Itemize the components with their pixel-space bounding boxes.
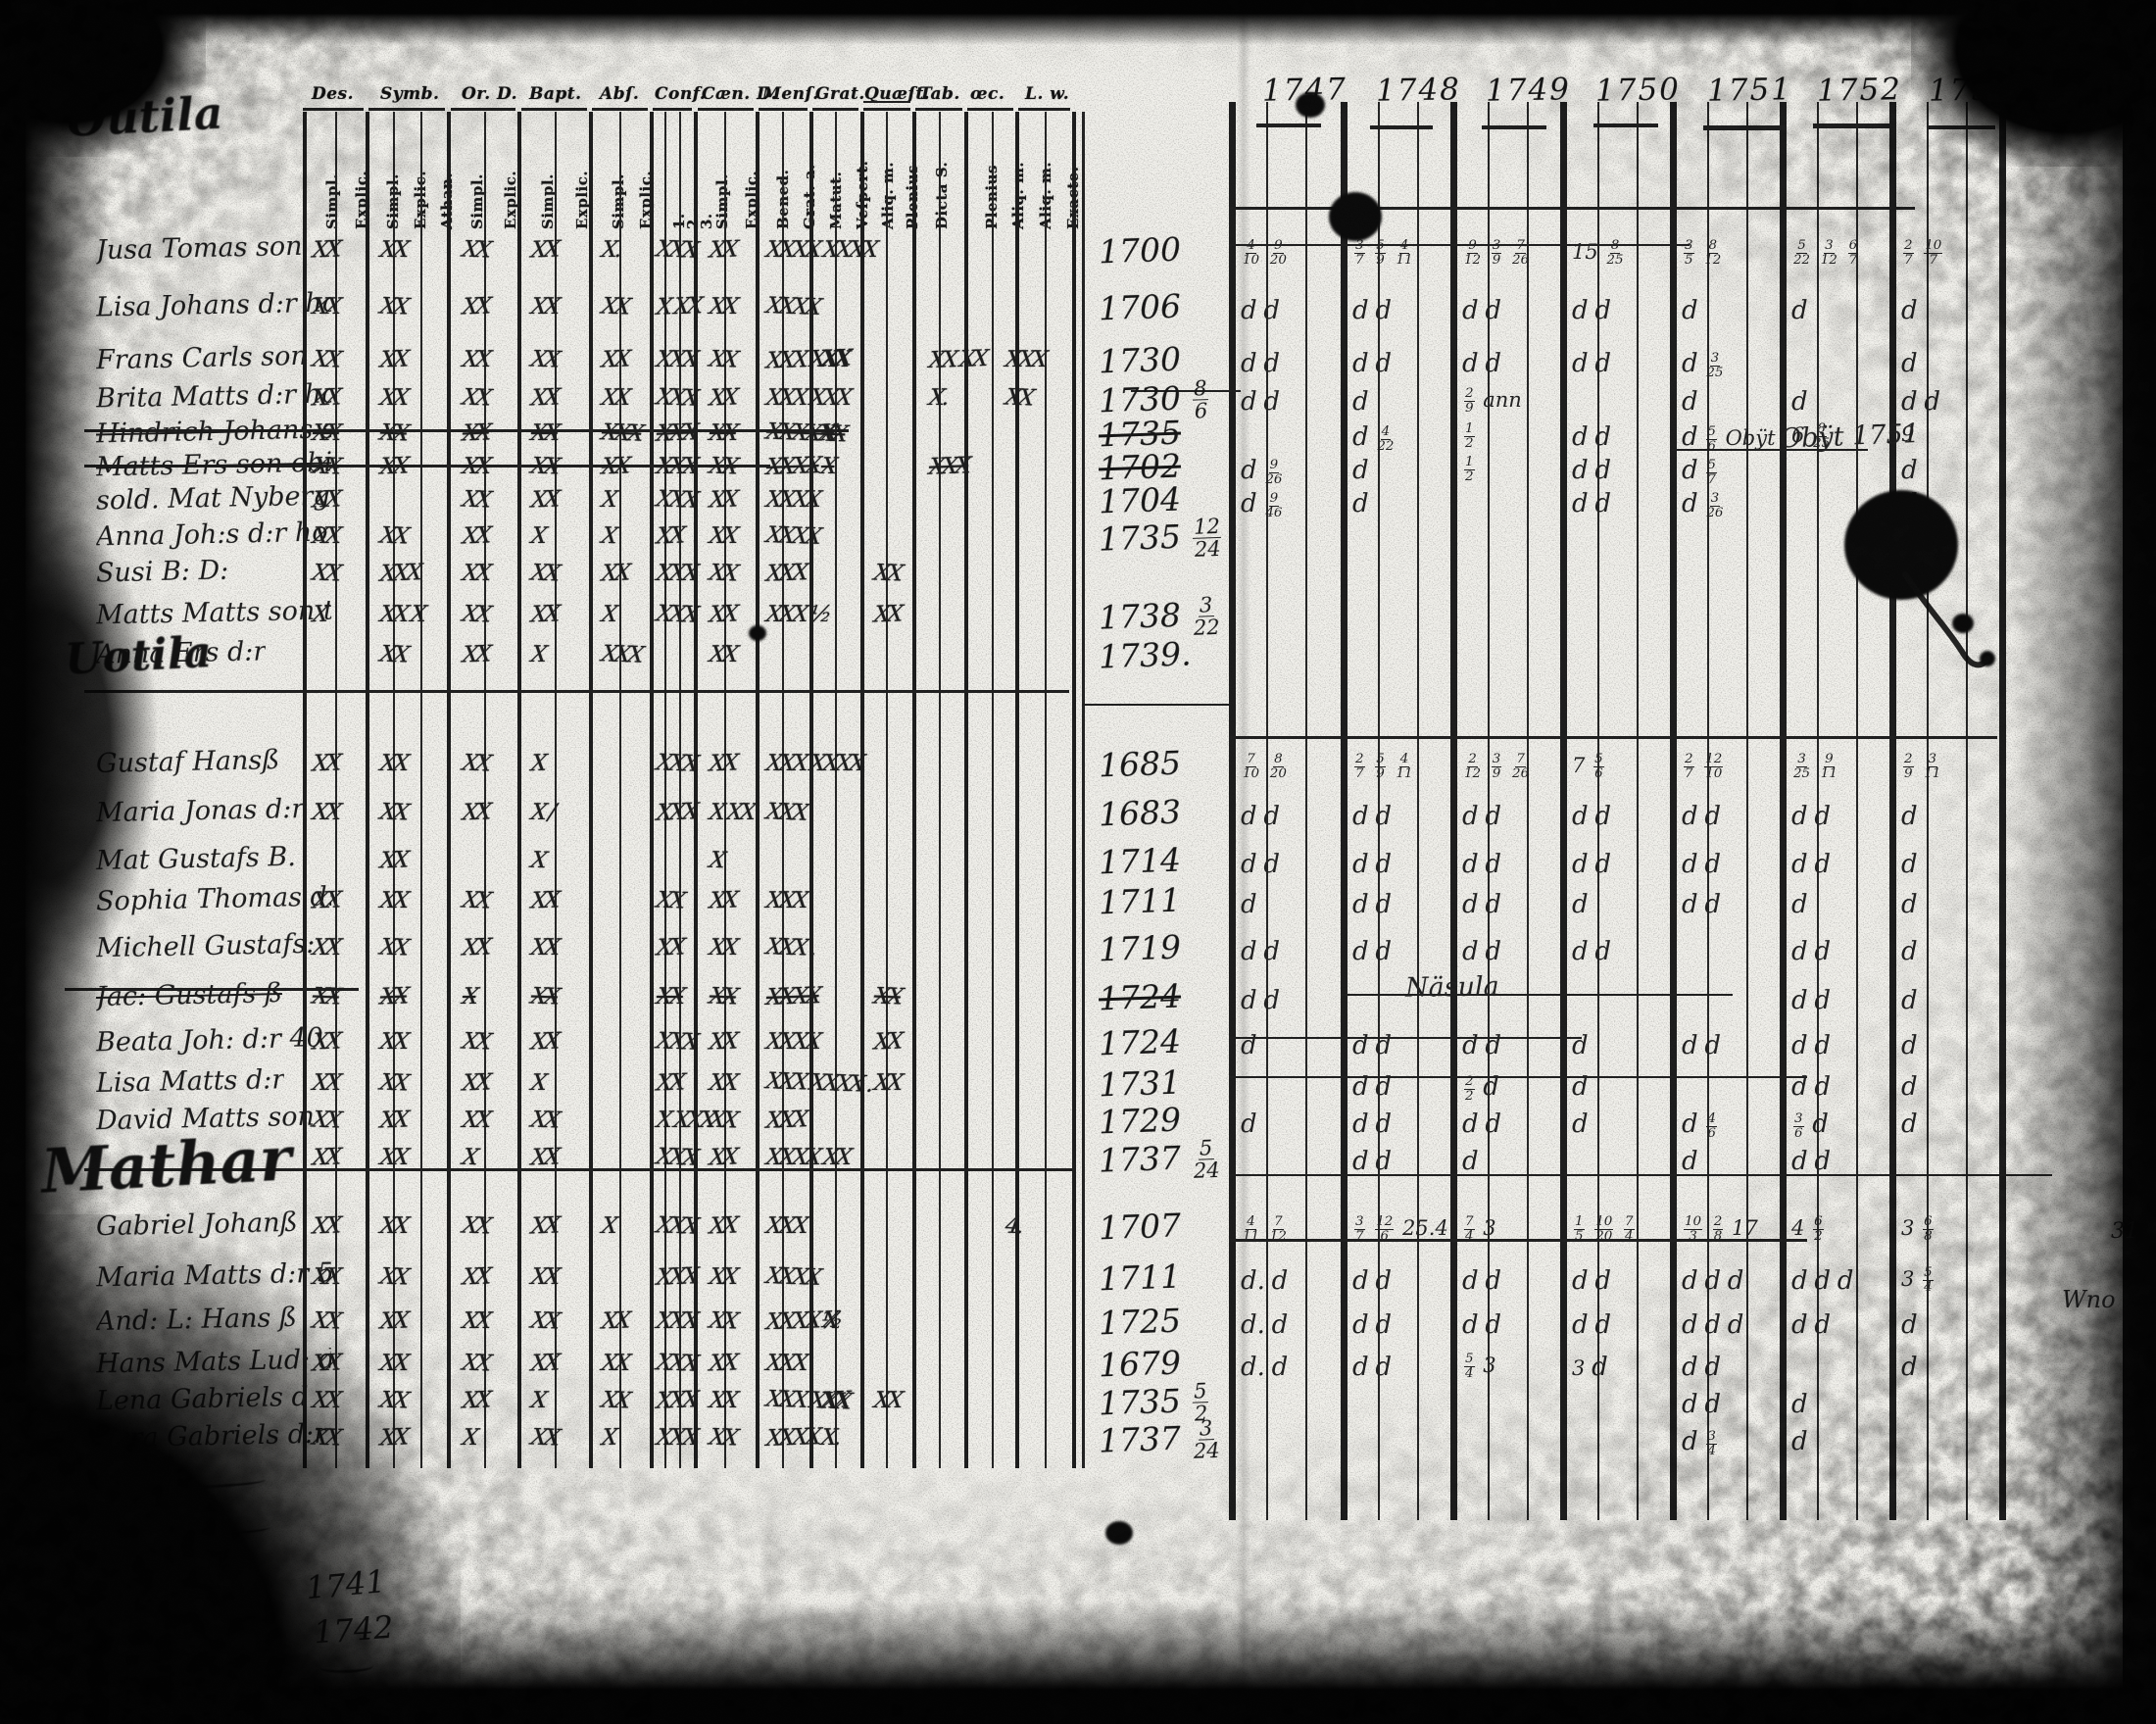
right-grid-rule-thin [1966, 102, 1968, 1520]
communion-record-cell: d [1791, 1427, 1808, 1456]
communion-record-cell: d [1901, 296, 1918, 325]
birth-year: 1730 [1098, 340, 1181, 381]
communion-record-cell: 29 311 [1901, 753, 1942, 781]
ditto-mark: d [1682, 349, 1698, 378]
fraction-date: 39 [1492, 753, 1502, 781]
communion-record-cell: 12 [1462, 422, 1477, 451]
rule-horizontal [592, 108, 648, 111]
communion-record-cell: 12 [1462, 456, 1477, 484]
communion-record-cell: d [1241, 1031, 1257, 1060]
birth-year: 1725 [1098, 1302, 1181, 1343]
attendance-marks-cell: XX [872, 561, 903, 587]
attendance-marks-cell: XXX [928, 453, 970, 480]
ditto-mark: d [1728, 1310, 1744, 1340]
attendance-marks-cell: XX [312, 750, 340, 776]
ditto-mark: d [1375, 1310, 1392, 1340]
communion-record-cell: d [1901, 937, 1918, 966]
attendance-marks-cell: XXX [1004, 347, 1047, 372]
communion-record-cell: d d [1462, 349, 1501, 378]
ink-blot [1952, 614, 1974, 633]
attendance-marks-cell: XX [530, 1144, 559, 1170]
ditto-mark: d [1682, 296, 1698, 325]
attendance-marks-cell: XXX [765, 560, 808, 587]
section-title: Uotila [64, 627, 213, 685]
attendance-marks-cell: XX [708, 1108, 738, 1134]
fraction-date: 62 [1813, 1215, 1824, 1244]
attendance-marks-cell: XX [872, 1388, 902, 1413]
attendance-marks-cell: X [461, 984, 477, 1010]
attendance-marks-cell: XX [656, 934, 684, 961]
communion-record-cell: d 56 Obÿt [1682, 422, 1776, 454]
birth-year: 1729 [1098, 1101, 1181, 1142]
birth-year: 1739. [1098, 634, 1192, 675]
birth-year: 1679 [1098, 1344, 1181, 1385]
ditto-mark: d [1814, 1072, 1831, 1102]
birth-year: 1724 [1098, 977, 1181, 1018]
attendance-marks-cell: XX [378, 642, 409, 668]
ditto-mark: d [1241, 850, 1257, 879]
attendance-marks-cell: XX [378, 1388, 409, 1414]
ditto-mark: d [1352, 1310, 1369, 1340]
grid-rule-vertical-thin [992, 112, 994, 1468]
attendance-marks-cell: X [529, 642, 546, 667]
ditto-mark: d [1241, 890, 1257, 919]
attendance-marks-cell: X [819, 454, 836, 479]
attendance-marks-cell: XXX [764, 799, 808, 825]
attendance-marks-cell: XX [709, 486, 737, 513]
handwritten-annotation: Obÿt 1751 [1780, 419, 1921, 455]
attendance-marks-cell: XX [601, 453, 629, 479]
ditto-mark: d [1241, 387, 1257, 417]
ditto-mark: d [1704, 1031, 1721, 1060]
ditto-mark: d [1375, 1353, 1392, 1382]
rule-horizontal [1341, 994, 1733, 996]
communion-record-cell: d [1791, 296, 1808, 325]
attendance-marks-cell: XXX [655, 601, 699, 627]
column-subheader: Aliq. m. [879, 162, 897, 229]
communion-record-cell: 37 126 25.4 [1352, 1215, 1448, 1244]
ditto-mark: d [1462, 850, 1479, 879]
attendance-marks-cell: XX [530, 486, 559, 513]
attendance-marks-cell: XXX [655, 236, 699, 263]
row-name: Matts Matts son tien: [96, 595, 332, 630]
rule-horizontal [84, 690, 1069, 693]
faint-scribble [319, 1659, 373, 1674]
ditto-mark: d [1263, 986, 1280, 1015]
communion-record-cell: d [1682, 387, 1698, 417]
year-header: 1750 [1595, 72, 1682, 109]
ditto-mark: d [1375, 296, 1392, 325]
attendance-marks-cell: XX [708, 294, 737, 320]
communion-record-cell: d [1901, 1353, 1918, 1382]
ditto-mark: d [1594, 1266, 1611, 1296]
attendance-marks-cell: XX [462, 293, 490, 320]
communion-record-cell: d d [1352, 1353, 1392, 1382]
ditto-mark: d [1241, 1031, 1257, 1060]
ditto-mark: d [1901, 802, 1918, 831]
rule-horizontal [812, 108, 858, 111]
attendance-marks-cell: XX [873, 1028, 902, 1055]
ditto-mark: d [1791, 986, 1808, 1015]
birth-year: 1737 524 [1098, 1137, 1222, 1186]
attendance-marks-cell: XX [378, 1213, 408, 1239]
attendance-marks-cell: X [529, 1388, 546, 1413]
communion-record-cell: d d d [1682, 1310, 1743, 1340]
year-header: 1748 [1376, 72, 1462, 109]
rule-horizontal [1927, 125, 1995, 129]
ditto-mark: d [1791, 387, 1808, 417]
row-name: Maria Jonas d:r [96, 794, 305, 828]
attendance-marks-cell: XX [530, 236, 559, 263]
attendance-marks-cell: X. [819, 1425, 840, 1451]
grid-rule-vertical [650, 112, 654, 1468]
fraction-date: 311 [1924, 753, 1940, 781]
ditto-mark: d [1375, 1031, 1392, 1060]
communion-record-cell: 27 1210 [1682, 753, 1725, 781]
birth-year: 1735 1224 [1098, 516, 1224, 565]
communion-record-cell: d d [1352, 802, 1392, 831]
ditto-mark: d [1572, 349, 1589, 378]
attendance-marks-cell: XX [462, 1263, 490, 1290]
column-subheader: Simpl. [713, 173, 731, 229]
column-header: Menſ. [762, 84, 819, 104]
ditto-mark: d [1901, 1353, 1918, 1382]
communion-record-cell: 4 62 [1791, 1215, 1826, 1244]
ditto-mark: d [1352, 422, 1369, 452]
attendance-marks-cell: XX [529, 420, 559, 446]
rule-horizontal [451, 108, 515, 111]
attendance-marks-cell: XX [462, 522, 490, 549]
ditto-mark: d [1572, 296, 1589, 325]
attendance-marks-cell: XXX XXXX . [764, 1068, 873, 1098]
fraction-date: 56 [1706, 425, 1717, 454]
ditto-mark: d [1375, 937, 1392, 966]
communion-record-cell: 15 825 [1572, 239, 1626, 268]
rule-horizontal [1370, 125, 1433, 129]
fraction-date: 29 [1903, 753, 1914, 781]
attendance-marks-cell: XX [378, 800, 409, 826]
fraction-date: 34 [1706, 1430, 1717, 1458]
attendance-marks-cell: XX [311, 935, 340, 961]
ditto-mark: d [1901, 387, 1918, 417]
ditto-mark: d [1485, 1310, 1501, 1340]
communion-record-cell: d [1572, 1031, 1589, 1060]
fraction-date: 36 [1793, 1112, 1804, 1141]
rule-horizontal [521, 108, 587, 111]
attendance-marks-cell: XX [311, 1108, 341, 1134]
attendance-marks-cell: X [600, 602, 616, 627]
attendance-marks-cell: XX [311, 1308, 341, 1335]
handwritten-annotation: Näsula [1405, 971, 1499, 1004]
ditto-mark: d [1814, 1147, 1831, 1176]
ditto-mark: d [1485, 937, 1501, 966]
ditto-mark: d [1241, 489, 1257, 518]
communion-record-cell: d d [1572, 1310, 1611, 1340]
communion-record-cell: 27 107 [1901, 239, 1944, 268]
communion-record-cell: d 57 [1682, 456, 1719, 487]
birth-year: 1685 [1098, 744, 1181, 785]
attendance-marks-cell: XXX [655, 1028, 699, 1055]
ditto-mark: d [1241, 986, 1257, 1015]
attendance-marks-cell: XX [311, 454, 341, 480]
communion-record-cell: d [1901, 802, 1918, 831]
communion-record-cell: d [1352, 456, 1369, 485]
ditto-mark: d [1682, 1427, 1698, 1456]
fraction-date: 312 [1821, 239, 1837, 268]
attendance-marks-cell: XX [709, 384, 737, 411]
row-name: Lisa Johans d:r ho [96, 287, 332, 322]
communion-record-cell: d d [1352, 1310, 1392, 1340]
attendance-marks-cell: XX [378, 237, 408, 263]
communion-record-cell: 74 3 [1462, 1215, 1496, 1244]
ditto-mark: d [1462, 890, 1479, 919]
ditto-mark: d [1352, 349, 1369, 378]
ditto-mark: d [1682, 456, 1698, 485]
attendance-marks-cell: X. [927, 385, 948, 411]
communion-record-cell: d d [1462, 850, 1501, 879]
communion-record-cell: d d [1352, 1109, 1392, 1139]
fraction-date: 524 [1193, 1137, 1220, 1182]
attendance-marks-cell: XX [530, 1028, 559, 1055]
birth-year: 1724 [1098, 1022, 1181, 1063]
ditto-mark: d [1682, 1031, 1698, 1060]
attendance-marks-cell: XX [530, 1350, 559, 1376]
row-name: Anna Joh:s d:r ho [96, 517, 328, 553]
communion-record-cell: d [1901, 1109, 1918, 1139]
attendance-marks-cell: XX [530, 601, 559, 627]
attendance-marks-cell: X XX [656, 293, 702, 320]
right-grid-rule-thick [1780, 102, 1787, 1520]
fraction-date: 410 [1243, 239, 1259, 268]
ditto-mark: d [1791, 1266, 1808, 1296]
attendance-marks-cell: XXXX [765, 983, 820, 1010]
attendance-marks-cell: XXX [655, 1350, 699, 1376]
attendance-marks-cell: XX [378, 385, 408, 411]
fraction-date: 28 [1713, 1215, 1724, 1244]
ditto-mark: d [1901, 937, 1918, 966]
communion-record-cell: d d [1901, 387, 1940, 417]
attendance-marks-cell: X [820, 420, 836, 447]
ditto-mark: d [1272, 1266, 1289, 1296]
fraction-date: 326 [1706, 492, 1723, 520]
attendance-marks-cell: XX [708, 1070, 737, 1096]
grid-rule-vertical [964, 112, 968, 1468]
grid-rule-vertical-thin [420, 112, 422, 1468]
ditto-mark: d [1241, 296, 1257, 325]
attendance-marks-cell: XX X [378, 602, 425, 627]
fraction-date: 126 [1375, 1215, 1394, 1244]
ink-blot [1329, 192, 1382, 241]
attendance-marks-cell: XX [530, 1212, 559, 1239]
grid-rule-vertical-thin [1045, 112, 1047, 1468]
ditto-mark: d [1485, 802, 1501, 831]
fraction-date: 325 [1706, 352, 1723, 380]
column-header: Or. D. [462, 84, 517, 104]
communion-record-cell: d d [1352, 349, 1392, 378]
fraction-date: 12 [1464, 422, 1475, 451]
ditto-mark: d [1704, 850, 1721, 879]
attendance-marks-cell: XX [379, 1107, 408, 1133]
attendance-marks-cell: XX [529, 1264, 559, 1290]
section-title: Mathar [39, 1122, 293, 1207]
attendance-marks-cell: X [530, 751, 546, 777]
fraction-date: 37 [1354, 1215, 1365, 1244]
fraction-date: 27 [1684, 753, 1694, 781]
communion-record-cell: d [1901, 1072, 1918, 1102]
row-name: And: L: Hans ß [96, 1303, 298, 1337]
communion-record-cell: d 34 [1682, 1427, 1719, 1458]
birth-year: 1711 [1098, 881, 1181, 922]
communion-record-cell: d d [1352, 1147, 1392, 1176]
ditto-mark: d [1572, 937, 1589, 966]
ditto-mark: d [1812, 1109, 1829, 1139]
attendance-marks-cell: XX [378, 935, 409, 961]
ditto-mark: d [1352, 850, 1369, 879]
ditto-mark: d [1462, 1031, 1479, 1060]
birth-year: 1704 [1098, 480, 1181, 521]
ditto-mark: d [1791, 802, 1808, 831]
attendance-marks-cell: XX [529, 1308, 560, 1335]
fraction-date: 39 [1492, 239, 1502, 268]
communion-record-cell: d d [1572, 489, 1611, 518]
attendance-marks-cell: X [529, 1070, 546, 1096]
ditto-mark: d [1375, 802, 1392, 831]
communion-record-cell: d. d [1241, 1266, 1288, 1296]
attendance-marks-cell: XX [311, 561, 341, 587]
attendance-marks-cell: XXX XXXX [764, 751, 864, 776]
ditto-mark: d [1682, 802, 1698, 831]
fraction-date: 812 [1704, 239, 1721, 268]
ditto-mark: d [1352, 1072, 1369, 1102]
grid-rule-vertical-thin [939, 112, 941, 1468]
scanned-register-page: Des.Symb.Or. D.Bapt.Abſ.Conf.Cæn. D.Menſ… [0, 0, 2156, 1724]
attendance-marks-cell: XX [708, 347, 738, 373]
grid-rule-vertical [589, 112, 593, 1468]
attendance-marks-cell: XX [311, 800, 340, 825]
rule-horizontal [1229, 736, 1997, 739]
communion-record-cell: d d [1572, 937, 1611, 966]
ink-blot [1105, 1521, 1133, 1545]
handwritten-annotation: 31 [2111, 1219, 2138, 1244]
attendance-marks-cell: XX [378, 1351, 408, 1376]
communion-record-cell: d d [1352, 890, 1392, 919]
ditto-mark: d [1462, 1109, 1479, 1139]
attendance-marks-cell: X [600, 523, 617, 549]
ditto-mark: d [1682, 1266, 1698, 1296]
ditto-mark: d [1682, 1109, 1698, 1139]
fraction-date: 411 [1243, 1215, 1259, 1244]
handwritten-annotation: Wno [2062, 1286, 2116, 1313]
attendance-marks-cell: XXX . [764, 934, 816, 961]
communion-record-cell: d [1572, 890, 1589, 919]
communion-record-cell: d d [1682, 802, 1721, 831]
communion-record-cell: d d [1352, 937, 1392, 966]
communion-record-cell: d d [1682, 1031, 1721, 1060]
attendance-marks-cell: X XX [708, 800, 755, 825]
faint-scribble [119, 1473, 266, 1491]
communion-record-cell: d d [1791, 850, 1831, 879]
fraction-date: 324 [1193, 1417, 1220, 1462]
attendance-marks-cell: XXX [655, 1425, 698, 1451]
attendance-marks-cell: XX [379, 847, 408, 873]
attendance-marks-cell: XXX [655, 454, 698, 479]
attendance-marks-cell: X [600, 487, 616, 513]
fraction-date: 74 [1464, 1215, 1475, 1244]
ditto-mark: d [1791, 1427, 1808, 1456]
attendance-marks-cell: X / [529, 800, 555, 825]
ditto-mark: d [1682, 422, 1698, 452]
ditto-mark: d [1791, 1147, 1808, 1176]
ditto-mark: d [1462, 1310, 1479, 1340]
attendance-marks-cell: XX [378, 1070, 409, 1097]
attendance-marks-cell: XX [378, 294, 409, 320]
communion-record-cell: d [1901, 349, 1918, 378]
communion-record-cell: d d [1572, 349, 1611, 378]
attendance-marks-cell: XXXX [764, 1263, 821, 1291]
right-grid-rule-thick [1450, 102, 1457, 1520]
communion-record-cell: 29 ann [1462, 387, 1522, 416]
grid-rule-vertical [860, 112, 864, 1468]
fraction-date: 67 [1848, 239, 1859, 268]
attendance-marks-cell: XX [461, 1029, 491, 1056]
fraction-date: 57 [1706, 459, 1717, 487]
attendance-marks-cell: XX [656, 522, 684, 549]
ditto-mark: d. [1241, 1353, 1265, 1382]
attendance-marks-cell: XXX [655, 486, 699, 513]
ditto-mark: d [1352, 387, 1369, 417]
communion-record-cell: d [1682, 1147, 1698, 1176]
ink-blot [1844, 490, 1958, 600]
fraction-date: 1210 [1704, 753, 1723, 781]
ditto-mark: d [1572, 1031, 1589, 1060]
rule-horizontal [1593, 123, 1658, 127]
attendance-marks-cell: XX [529, 984, 560, 1010]
attendance-marks-cell: XXX [655, 384, 699, 411]
column-header: Tab. [919, 84, 960, 104]
ditto-mark: d [1572, 1310, 1589, 1340]
communion-record-cell: d 422 [1352, 422, 1396, 454]
communion-record-cell: d d [1241, 296, 1280, 325]
fraction-date: 522 [1793, 239, 1810, 268]
ditto-mark: d [1263, 349, 1280, 378]
communion-record-cell: d d [1462, 937, 1501, 966]
rule-horizontal [1703, 125, 1786, 130]
communion-record-cell: d d [1682, 890, 1721, 919]
attendance-marks-cell: XX [461, 602, 491, 628]
attendance-marks-cell: XX [462, 1069, 490, 1096]
attendance-marks-cell: XX [709, 601, 737, 627]
attendance-marks-cell: XX [378, 1029, 408, 1055]
communion-record-cell: 35 812 [1682, 239, 1723, 268]
ditto-mark: d [1592, 1353, 1608, 1382]
attendance-marks-cell: XX [873, 601, 902, 627]
ditto-mark: d [1791, 296, 1808, 325]
ditto-mark: d [1352, 890, 1369, 919]
fraction-date: 920 [1270, 239, 1287, 268]
attendance-marks-cell: XX [312, 384, 340, 411]
ditto-mark: d [1572, 850, 1589, 879]
ditto-mark: d [1814, 986, 1831, 1015]
attendance-marks-cell: XX [709, 1144, 737, 1170]
ditto-mark: d [1263, 387, 1280, 417]
ditto-mark: d [1594, 296, 1611, 325]
attendance-marks-cell: XX [461, 1108, 490, 1133]
attendance-marks-cell: XX [312, 1028, 340, 1055]
ditto-mark: d [1462, 349, 1479, 378]
communion-record-cell: d [1241, 890, 1257, 919]
communion-record-cell: d d [1682, 1353, 1721, 1382]
attendance-marks-cell: X [461, 1145, 478, 1170]
